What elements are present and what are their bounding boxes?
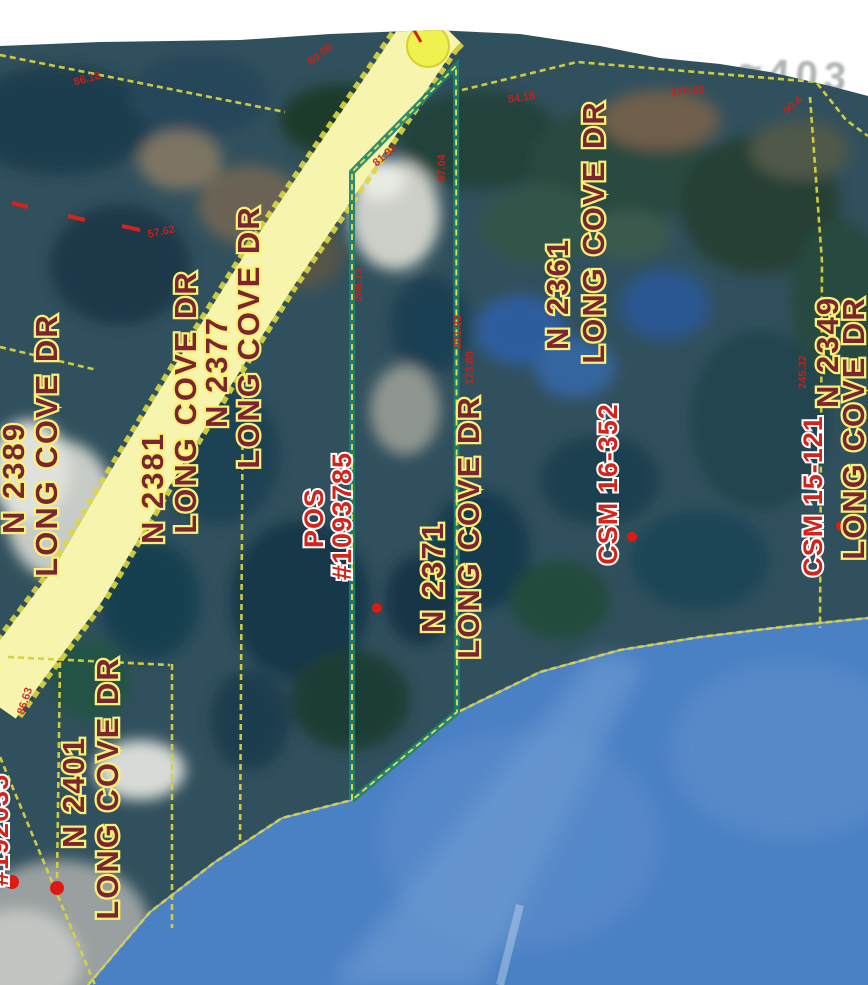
parcel-label-street: LONG COVE DR	[231, 205, 266, 468]
parcel-label-street: LONG COVE DR	[90, 656, 125, 919]
parcel-label-street: LONG COVE DR	[451, 395, 486, 658]
parcel-label-address: N 2389	[0, 422, 31, 534]
pos-label-line1: POS	[299, 488, 329, 548]
parcel-label-street: LONG COVE DR	[168, 270, 203, 533]
dimension-label: 170.90	[671, 84, 705, 98]
aerial-photo: 86.18 80.06 84.18 170.90 90.4 57.62 81.9…	[0, 20, 868, 985]
dimension-label: 173.85	[464, 351, 476, 385]
parcel-label-address: N 2401	[56, 736, 91, 848]
parcel-label-address: N 2361	[540, 238, 575, 350]
parcel-label-address: N 2377	[199, 316, 234, 428]
csm-label: CSM 15-121	[798, 415, 828, 577]
pos-label-line2: #1093785	[327, 452, 357, 580]
scanned-parcel-map-page: ≈403	[0, 0, 868, 985]
parcel-label-street: LONG COVE DR	[576, 100, 611, 363]
dimension-label: 67.04	[436, 153, 448, 181]
parcel-label-address: N 2371	[415, 521, 450, 633]
parcel-label-address: N 2381	[135, 432, 170, 544]
parcel-map-canvas: ≈403	[0, 0, 868, 985]
dimension-label: 201.92	[452, 315, 464, 349]
dimension-label: 245.32	[797, 355, 809, 389]
dimension-label: 209.13	[353, 268, 365, 302]
parcel-label-street: LONG COVE DR	[836, 296, 868, 559]
csm-label: CSM 16-352	[593, 403, 623, 565]
pos-label-partial: #192035	[0, 774, 14, 886]
parcel-label-street: LONG COVE DR	[29, 313, 64, 576]
